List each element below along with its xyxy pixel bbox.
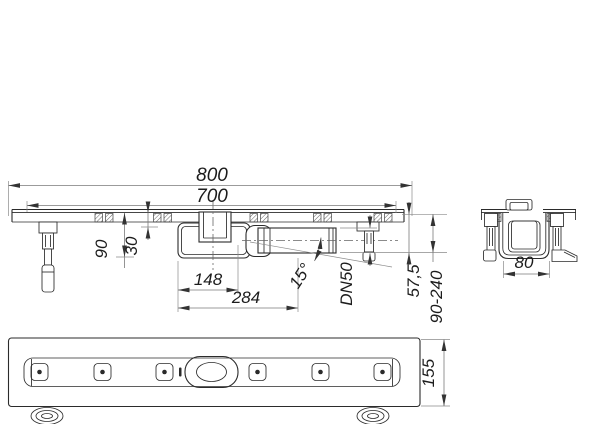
channel-depth-label: 30 (122, 236, 141, 255)
swivel-foot-plate (552, 250, 577, 262)
grate-cap-inner (510, 203, 528, 211)
channel-width-label: 80 (515, 253, 534, 272)
outlet-projection-label: 284 (231, 288, 260, 307)
dim-flange-width: 155 (419, 340, 450, 407)
grate-clips (95, 214, 392, 223)
outlet-diameter-label: DN50 (337, 262, 356, 306)
body-height-label: 90 (92, 239, 111, 258)
drain-outlet-opening (197, 363, 227, 382)
drain-outlet-boss (185, 357, 238, 388)
dim-installation-height: 90-240 (427, 215, 446, 324)
side-view: 800 700 90 30 148 (9, 165, 448, 323)
flange-width-label: 155 (419, 358, 438, 387)
gutter-section-inner (512, 221, 538, 249)
flange-outline (9, 338, 421, 407)
left-foot-base (42, 265, 54, 292)
adjustable-foot-bottom-left (31, 408, 63, 424)
gutter-section (509, 221, 541, 252)
drawing-canvas: 800 700 90 30 148 (0, 0, 600, 424)
trap-width-label: 148 (194, 270, 223, 289)
technical-drawing-shower-channel: 800 700 90 30 148 (0, 0, 600, 424)
right-foot-bracket (357, 222, 379, 231)
adjustable-foot-bottom-right (357, 408, 389, 424)
section-left-foot (484, 214, 498, 262)
right-foot-base (363, 252, 375, 261)
dim-outlet-depth: 57,5 (404, 202, 423, 298)
grate-length-label: 700 (196, 186, 228, 207)
outlet-depth-label: 57,5 (404, 264, 423, 298)
level-mark (179, 368, 182, 377)
overall-length-label: 800 (196, 165, 228, 186)
section-right-foot (551, 214, 578, 262)
plan-view: 155 (9, 338, 451, 424)
installation-height-label: 90-240 (427, 270, 446, 323)
left-foot (39, 222, 57, 292)
left-foot-upper (43, 233, 54, 249)
outlet-angle-label: 15° (285, 260, 315, 292)
left-foot-shaft (45, 249, 52, 265)
dim-channel-width: 80 (504, 253, 550, 278)
right-foot-shaft (365, 231, 374, 252)
left-foot-bracket (39, 222, 57, 233)
fixing-pads (31, 364, 391, 381)
end-view: 80 (481, 200, 577, 279)
